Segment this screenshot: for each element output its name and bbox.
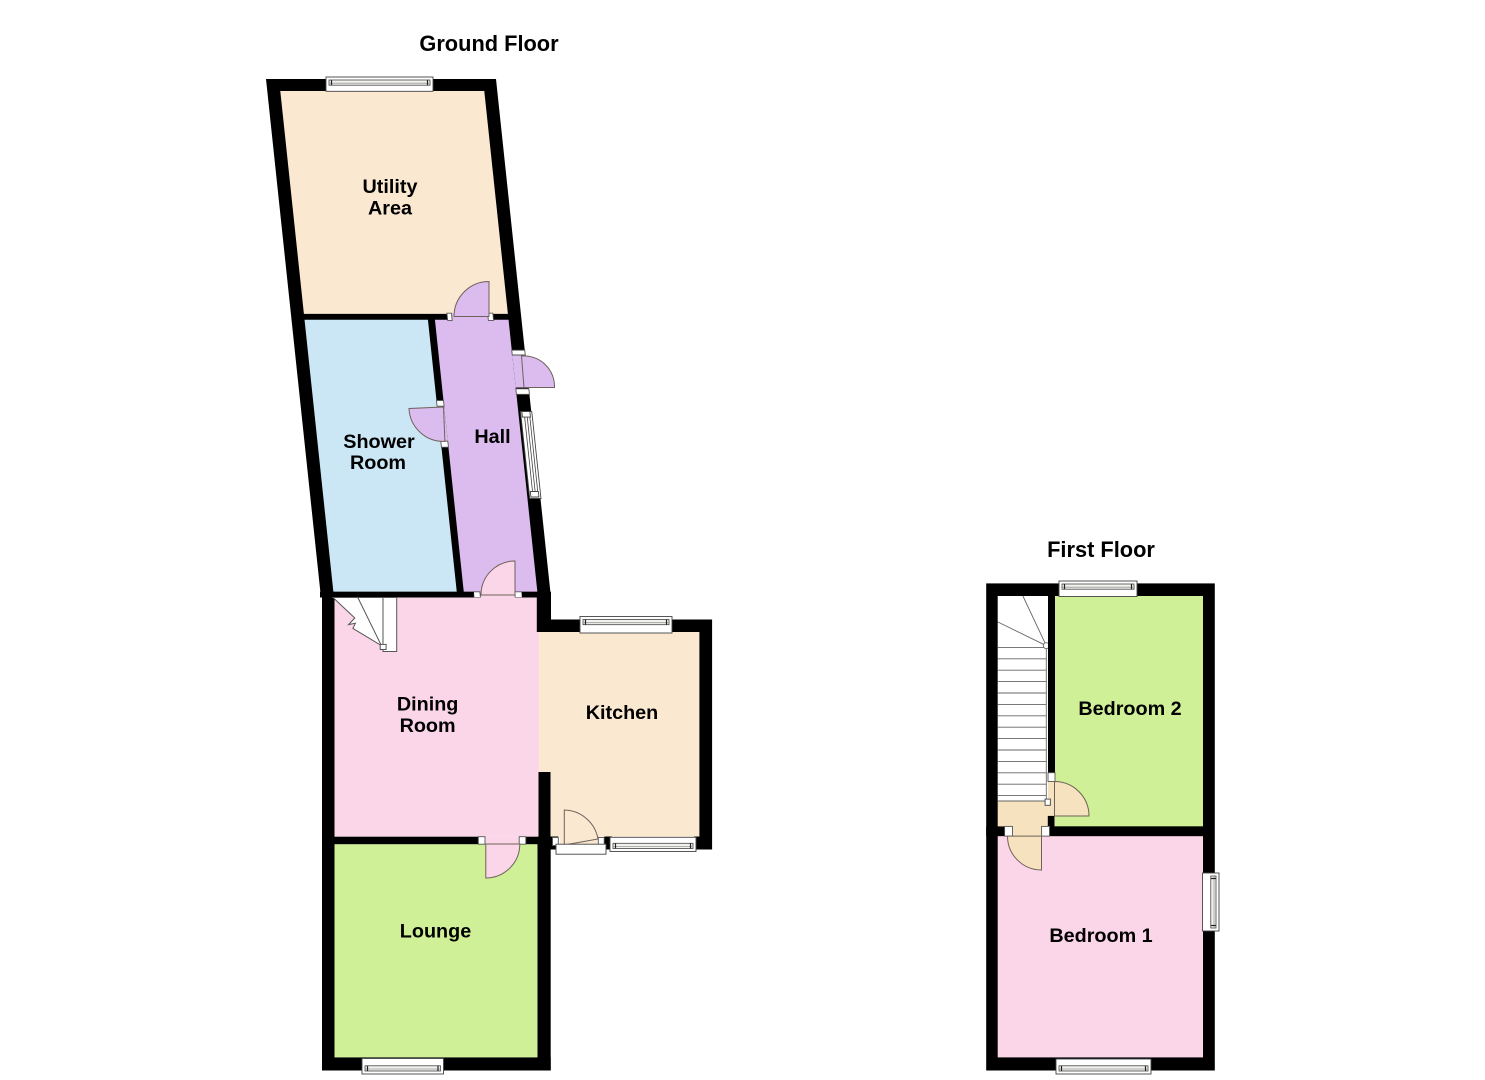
- svg-text:Room: Room: [400, 715, 456, 737]
- svg-text:Utility: Utility: [363, 176, 418, 198]
- svg-text:Bedroom 1: Bedroom 1: [1049, 925, 1152, 947]
- svg-text:Shower: Shower: [343, 431, 415, 453]
- svg-text:Room: Room: [350, 452, 406, 474]
- svg-text:Bedroom 2: Bedroom 2: [1078, 698, 1181, 720]
- svg-text:First Floor: First Floor: [1047, 537, 1155, 562]
- svg-text:Lounge: Lounge: [400, 920, 471, 942]
- svg-text:Ground Floor: Ground Floor: [419, 31, 559, 56]
- svg-text:Kitchen: Kitchen: [586, 702, 659, 724]
- svg-text:Hall: Hall: [474, 426, 510, 448]
- svg-text:Dining: Dining: [397, 694, 459, 716]
- svg-text:Area: Area: [368, 198, 413, 220]
